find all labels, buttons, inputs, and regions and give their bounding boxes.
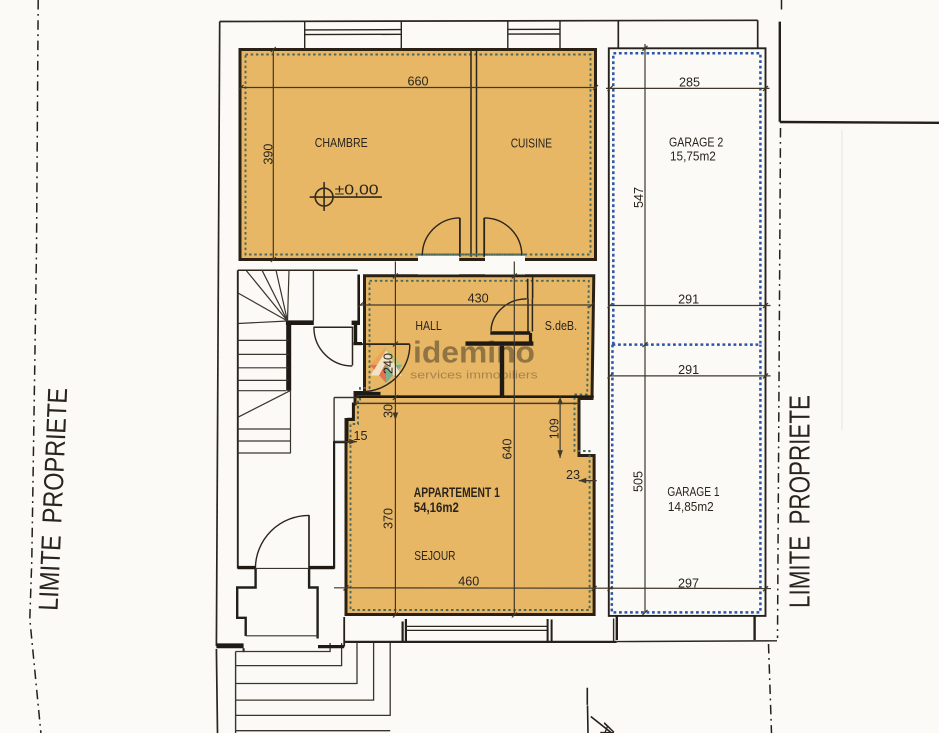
svg-text:23: 23: [566, 468, 580, 482]
svg-text:CUISINE: CUISINE: [511, 136, 553, 151]
svg-text:297: 297: [678, 577, 699, 591]
svg-text:370: 370: [381, 508, 395, 529]
svg-text:S.deB.: S.deB.: [545, 318, 577, 333]
svg-text:15,75m2: 15,75m2: [670, 149, 716, 164]
svg-text:285: 285: [679, 76, 700, 90]
svg-text:15: 15: [354, 429, 368, 443]
svg-text:640: 640: [501, 438, 515, 459]
svg-text:±0,00: ±0,00: [335, 182, 379, 198]
svg-text:services immobiliers: services immobiliers: [410, 369, 538, 381]
svg-text:109: 109: [547, 418, 561, 439]
svg-text:LIMITE PROPRIETE: LIMITE PROPRIETE: [785, 395, 817, 608]
svg-text:30: 30: [382, 404, 396, 418]
svg-text:GARAGE 2: GARAGE 2: [669, 135, 723, 150]
svg-text:291: 291: [678, 293, 699, 307]
svg-text:240: 240: [382, 353, 396, 374]
svg-text:SEJOUR: SEJOUR: [414, 548, 455, 563]
svg-text:14,85m2: 14,85m2: [668, 499, 714, 514]
svg-text:idemino: idemino: [413, 336, 535, 370]
svg-text:660: 660: [407, 75, 428, 89]
svg-text:390: 390: [261, 144, 275, 165]
svg-text:430: 430: [468, 292, 489, 306]
svg-text:547: 547: [632, 187, 646, 208]
svg-text:CHAMBRE: CHAMBRE: [315, 135, 368, 150]
svg-text:460: 460: [458, 574, 479, 588]
svg-text:GARAGE 1: GARAGE 1: [667, 484, 719, 499]
svg-text:HALL: HALL: [415, 318, 441, 333]
svg-text:APPARTEMENT 1: APPARTEMENT 1: [414, 485, 500, 500]
svg-text:505: 505: [632, 471, 646, 492]
svg-text:54,16m2: 54,16m2: [414, 500, 459, 515]
svg-text:291: 291: [678, 363, 699, 377]
